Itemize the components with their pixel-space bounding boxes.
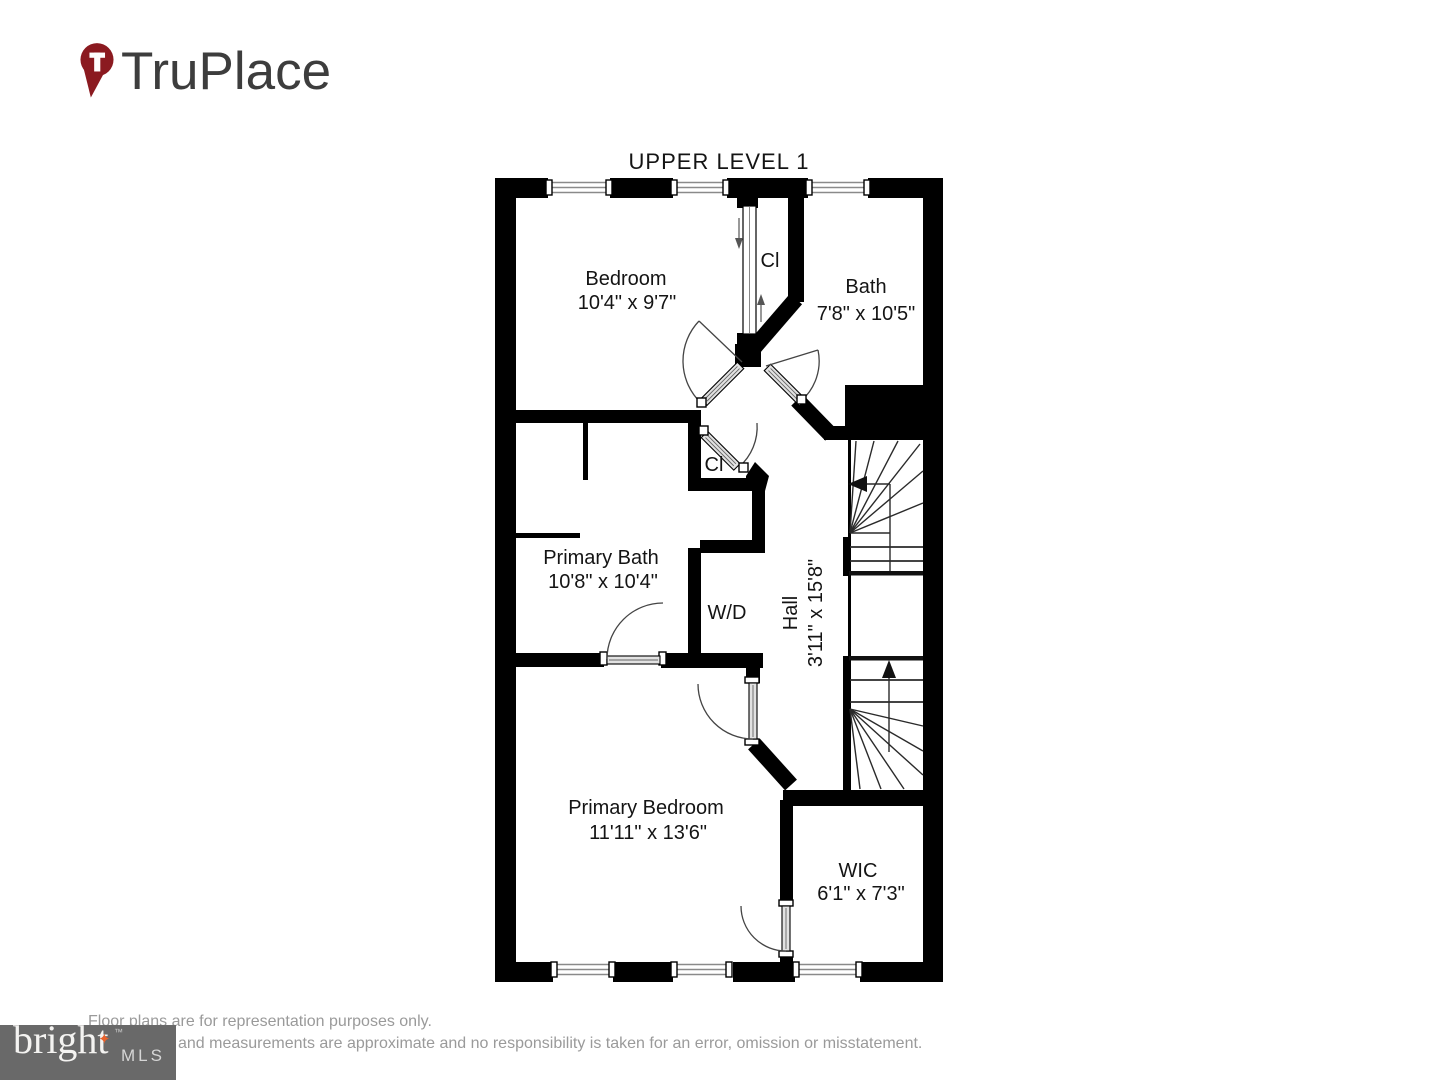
window-icon (551, 962, 615, 977)
room-dims-wic: 6'1" x 7'3" (817, 883, 904, 905)
primary-bedroom-door-icon (698, 677, 759, 745)
bright-mls-logo: bright ✦ ™ MLS (0, 1025, 176, 1080)
room-label-wic: WIC (839, 860, 878, 882)
window-icon (671, 180, 729, 195)
page: TruPlace (0, 0, 1440, 1080)
window-icon (793, 962, 862, 977)
room-label-closet-top: Cl (761, 250, 780, 272)
room-label-hall: Hall (780, 596, 802, 630)
floor-plan: UPPER LEVEL 1 Bedroom 10'4" x 9'7" Cl Ba… (0, 0, 1440, 1080)
disclaimer-line-2: and measurements are approximate and no … (178, 1035, 922, 1053)
window-icons-top (546, 180, 870, 195)
room-dims-primary-bath: 10'8" x 10'4" (548, 571, 658, 593)
wic-door-icon (741, 900, 793, 957)
room-dims-bedroom: 10'4" x 9'7" (578, 292, 677, 314)
room-label-closet-middle: Cl (705, 454, 724, 476)
star-icon: ✦ (98, 1030, 111, 1048)
bright-mls-wordmark: bright (13, 1016, 109, 1063)
window-icon (546, 180, 612, 195)
trademark-symbol: ™ (114, 1027, 123, 1037)
room-label-primary-bedroom: Primary Bedroom (568, 797, 724, 819)
room-label-bedroom: Bedroom (585, 268, 666, 290)
bath-door-icon (764, 350, 819, 406)
room-label-laundry: W/D (708, 602, 747, 624)
room-label-primary-bath: Primary Bath (543, 547, 659, 569)
room-dims-bath: 7'8" x 10'5" (817, 303, 916, 325)
window-icons-bottom (551, 962, 862, 977)
staircase (843, 440, 923, 790)
room-label-bath: Bath (845, 276, 886, 298)
plan-title: UPPER LEVEL 1 (629, 149, 810, 174)
room-dims-primary-bedroom: 11'11" x 13'6" (589, 822, 707, 844)
bedroom-door-icon (683, 321, 744, 407)
primary-bath-door-icon (600, 603, 666, 665)
room-dims-hall: 3'11" x 15'8" (805, 559, 827, 667)
window-icon (806, 180, 870, 195)
bright-mls-suffix: MLS (121, 1046, 165, 1066)
window-icon (671, 962, 732, 977)
stairs-up-arrow (882, 660, 896, 678)
